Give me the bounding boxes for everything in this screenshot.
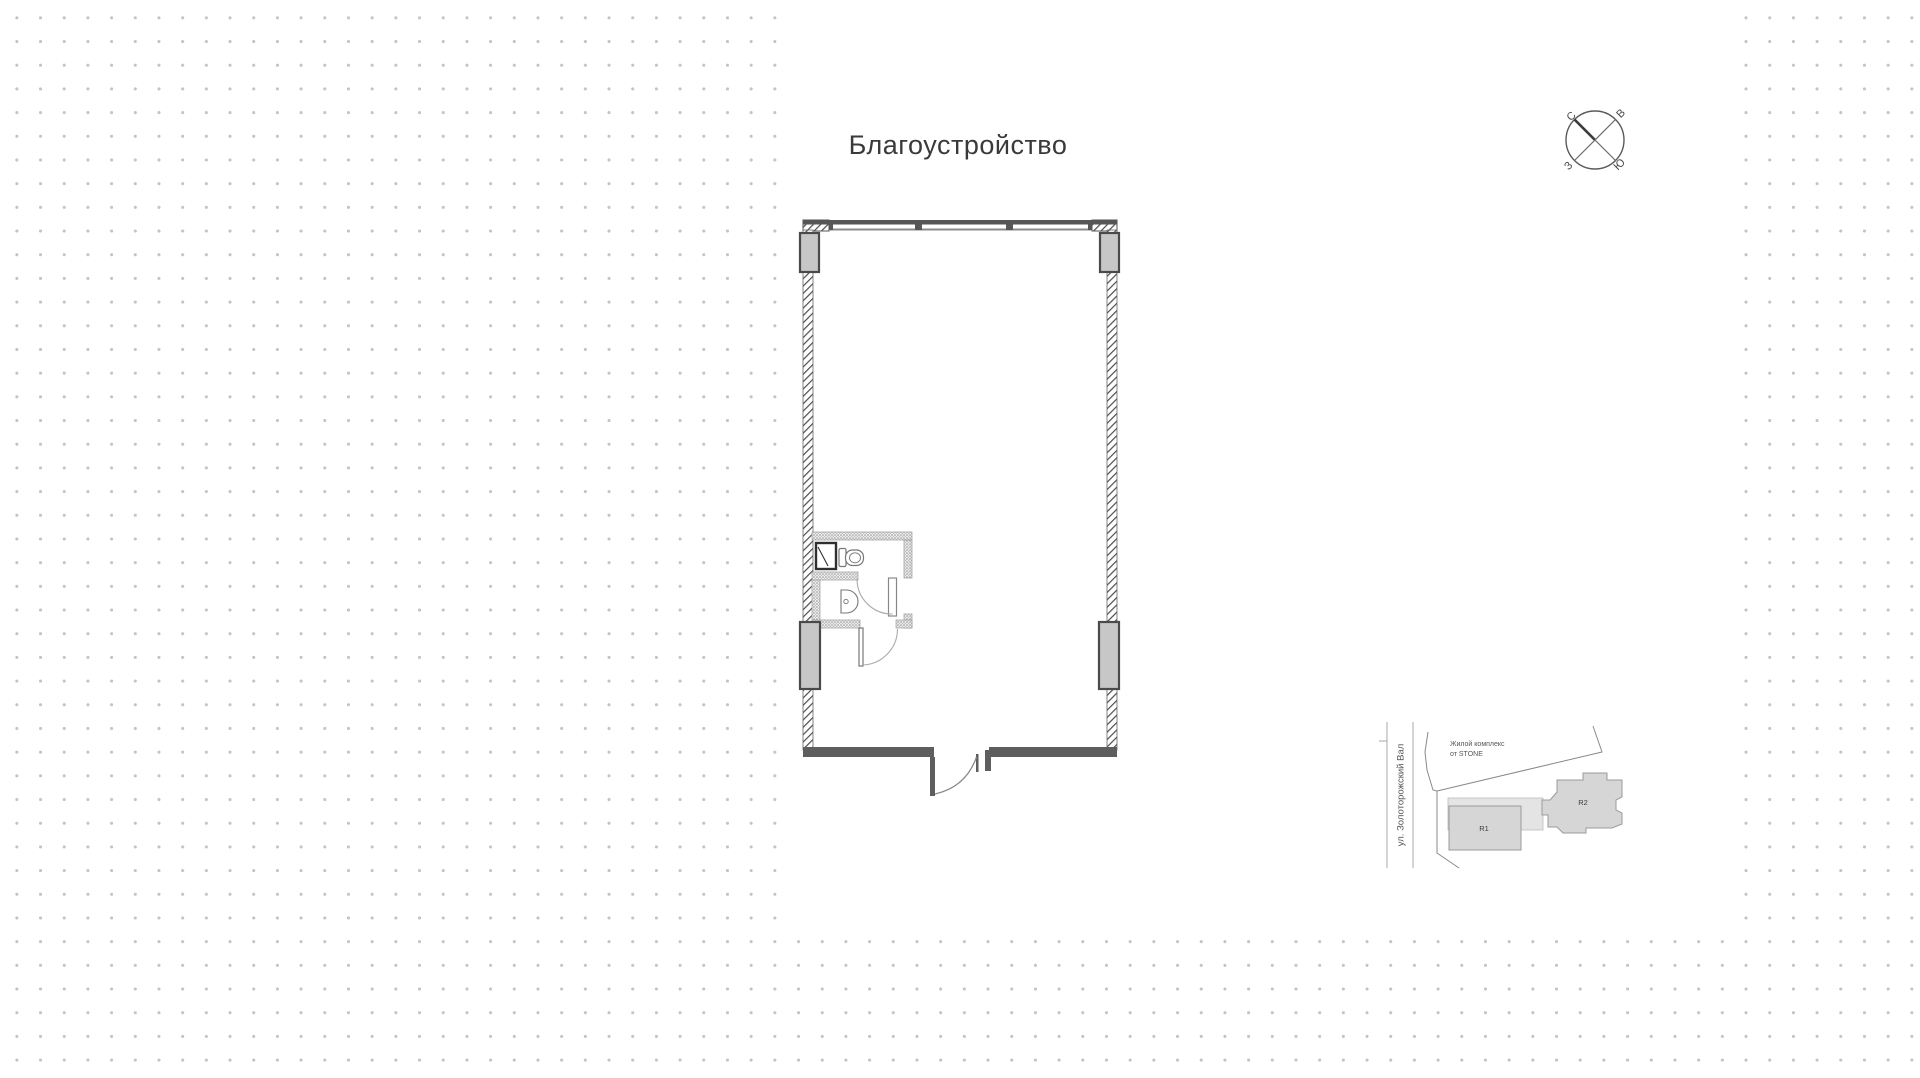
- exterior-walls: [803, 220, 1117, 757]
- bathroom-wall-divider: [812, 572, 858, 580]
- window-sill-line: [829, 229, 1092, 231]
- bathroom-wall-bottom-right: [896, 620, 912, 628]
- wall-left-lower: [803, 685, 813, 750]
- window-mullion: [1006, 221, 1013, 230]
- site-map: ул. Золоторожский Вал Жилой комплекс от …: [1375, 715, 1675, 875]
- column-top-right: [1100, 233, 1119, 272]
- wall-bottom-left: [803, 747, 934, 757]
- window-mullion: [829, 222, 833, 230]
- window-mullion: [1088, 222, 1092, 230]
- bathroom-exit-door-swing-arc: [862, 629, 898, 665]
- complex-caption: Жилой комплекс от STONE: [1450, 740, 1505, 758]
- window-wall-outer-line: [803, 220, 1117, 225]
- compass-west-label: З: [1562, 159, 1575, 172]
- wall-right-lower: [1107, 686, 1117, 750]
- floor-plan: [795, 215, 1125, 815]
- shaft-box: [816, 543, 836, 569]
- wall-left-upper: [803, 230, 813, 625]
- complex-caption-line1: Жилой комплекс: [1450, 740, 1505, 748]
- buildings: R1 R2: [1448, 773, 1622, 850]
- building-r1-label: R1: [1479, 824, 1489, 833]
- compass-north-pointer: [1574, 119, 1595, 140]
- entry-door-leaf: [976, 754, 979, 772]
- toilet-icon: [839, 549, 864, 567]
- street-label: ул. Золоторожский Вал: [1396, 744, 1407, 847]
- compass-rose-icon: С В Ю З: [1551, 96, 1639, 184]
- bathroom-door: [857, 578, 897, 616]
- compass-east-label: В: [1614, 107, 1628, 121]
- column-bottom-left: [800, 622, 820, 689]
- bathroom-exit-door: [859, 628, 898, 666]
- bathroom-exit-door-leaf: [859, 628, 863, 666]
- building-r2-label: R2: [1578, 798, 1588, 807]
- street: ул. Золоторожский Вал: [1379, 722, 1413, 868]
- wall-bottom-right: [989, 747, 1117, 757]
- column-bottom-right: [1099, 622, 1119, 689]
- bathroom-wall-right-upper: [904, 540, 912, 578]
- compass-group: С В Ю З: [1551, 96, 1639, 184]
- column-top-left: [800, 233, 819, 272]
- entry-door-jamb-right: [985, 750, 991, 771]
- entry-door-jamb-left: [930, 757, 935, 796]
- wall-right-upper: [1107, 230, 1117, 624]
- bathroom-wall-left: [812, 580, 820, 620]
- sink-icon: [841, 590, 858, 613]
- compass-south-line: [1595, 140, 1616, 161]
- bathroom-door-swing-arc: [857, 579, 893, 614]
- entry-door-swing-arc: [935, 757, 977, 794]
- bathroom-wall-top: [812, 532, 912, 540]
- window-mullion: [915, 221, 922, 230]
- entry-door: [930, 750, 991, 796]
- page-title: Благоустройство: [793, 130, 1123, 161]
- complex-caption-line2: от STONE: [1450, 751, 1483, 758]
- bathroom: [812, 532, 912, 666]
- bathroom-door-leaf: [889, 578, 897, 616]
